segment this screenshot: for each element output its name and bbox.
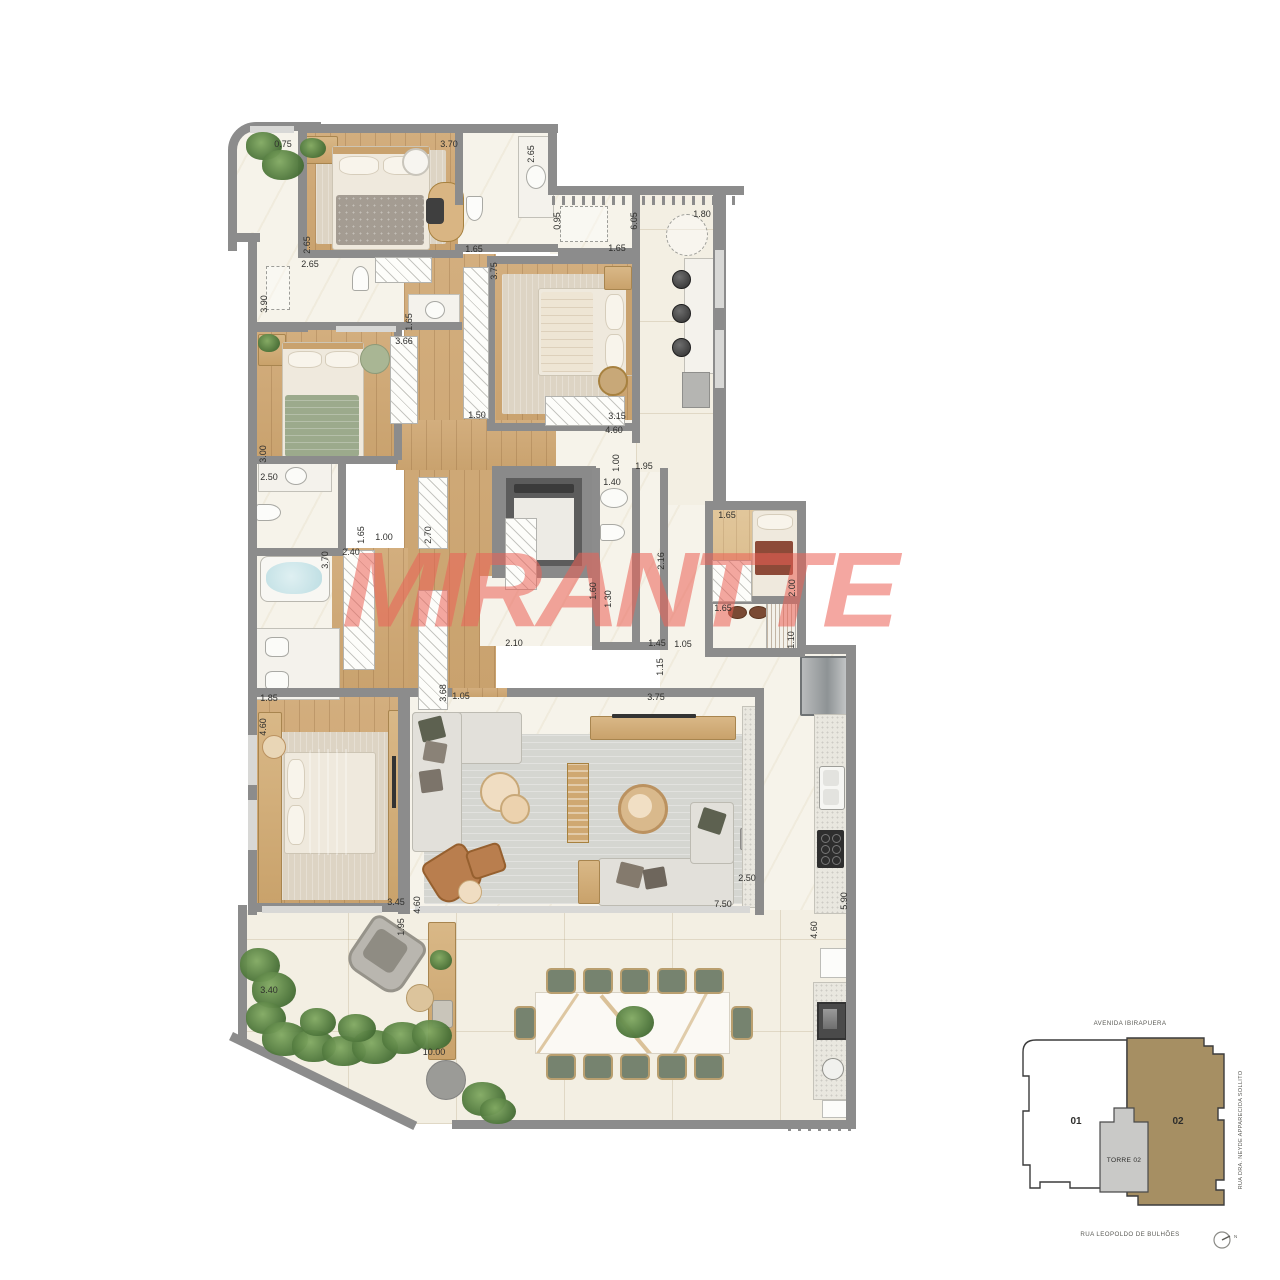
unit02-label: 02 bbox=[1172, 1116, 1184, 1127]
wall bbox=[548, 186, 744, 195]
bedroom1-blanket bbox=[336, 195, 424, 245]
dimension-label: 1.65 bbox=[714, 603, 732, 613]
fridge bbox=[800, 656, 850, 716]
bedroom3-bed bbox=[282, 342, 364, 462]
terrace-round-table bbox=[426, 1060, 466, 1100]
bbq-bench-top bbox=[820, 948, 848, 978]
balcony-ac-dashed bbox=[266, 266, 290, 310]
dimension-label: 1.65 bbox=[404, 313, 414, 331]
bedroom2-nightstand bbox=[604, 266, 632, 290]
dimension-label: 2.65 bbox=[301, 259, 319, 269]
master-bed bbox=[284, 752, 376, 854]
bbq-bench-bottom bbox=[822, 1100, 848, 1118]
dimension-label: 3.90 bbox=[259, 295, 269, 313]
dimension-label: 2.65 bbox=[526, 145, 536, 163]
dimension-label: 3.00 bbox=[258, 445, 268, 463]
dimension-label: 3.70 bbox=[440, 139, 458, 149]
wall bbox=[548, 124, 557, 195]
watermark: MIRANTTE bbox=[342, 528, 893, 651]
dining-chair bbox=[657, 968, 687, 994]
dimension-label: 1.45 bbox=[648, 638, 666, 648]
north-compass-icon: N bbox=[1214, 1232, 1237, 1248]
dimension-label: 1.05 bbox=[674, 639, 692, 649]
dimension-label: 1.30 bbox=[603, 590, 613, 608]
window bbox=[248, 735, 257, 785]
dimension-label: 1.95 bbox=[635, 461, 653, 471]
dimension-label: 2.65 bbox=[302, 236, 312, 254]
keyplan-svg: AVENIDA IBIRAPUERA RUA LEOPOLDO DE BULHÕ… bbox=[1008, 1012, 1248, 1262]
cooktop bbox=[817, 830, 844, 868]
master-blanket bbox=[309, 749, 353, 855]
tower-label: TORRE 02 bbox=[1107, 1157, 1142, 1164]
dimension-label: 0.75 bbox=[274, 139, 292, 149]
plant bbox=[300, 1008, 336, 1036]
dining-chair bbox=[620, 968, 650, 994]
console-shelf bbox=[567, 763, 589, 843]
sofa-pillow bbox=[422, 740, 447, 764]
kitchen-sink bbox=[819, 766, 845, 810]
plant bbox=[412, 1020, 452, 1050]
dimension-label: 4.60 bbox=[412, 896, 422, 914]
dimension-label: 3.68 bbox=[438, 684, 448, 702]
dimension-label: 3.70 bbox=[320, 551, 330, 569]
dimension-label: 3.75 bbox=[647, 692, 665, 702]
dimension-label: 2.40 bbox=[342, 547, 360, 557]
plant bbox=[480, 1098, 516, 1124]
bedroom1-mirror bbox=[402, 148, 430, 176]
bbq-sink bbox=[822, 1058, 844, 1080]
plant bbox=[616, 1006, 654, 1038]
plant bbox=[258, 334, 280, 352]
window bbox=[248, 800, 257, 850]
hall-ac-dashed bbox=[560, 206, 608, 242]
dimension-label: 2.00 bbox=[787, 579, 797, 597]
kitchen-counter bbox=[814, 714, 848, 914]
wall bbox=[846, 645, 856, 920]
unit01-label: 01 bbox=[1070, 1116, 1082, 1127]
elevator-door-bar bbox=[514, 484, 574, 493]
tv-sideboard bbox=[590, 716, 736, 740]
dimension-label: 1.00 bbox=[375, 532, 393, 542]
wall bbox=[705, 501, 805, 510]
plant bbox=[262, 150, 304, 180]
closet-wardrobe bbox=[463, 267, 489, 419]
bedroom2-blanket bbox=[541, 292, 593, 372]
dimension-label: 1.95 bbox=[396, 918, 406, 936]
awning-serration bbox=[552, 196, 742, 205]
dimension-label: 1.10 bbox=[786, 631, 796, 649]
dimension-label: 10.00 bbox=[423, 1047, 446, 1057]
dimension-label: 0.95 bbox=[552, 212, 562, 230]
dimension-label: 1.40 bbox=[603, 477, 621, 487]
compass-label: N bbox=[1234, 1234, 1237, 1239]
dimension-label: 2.10 bbox=[505, 638, 523, 648]
window bbox=[715, 330, 724, 388]
dining-chair bbox=[583, 968, 613, 994]
dimension-label: 3.15 bbox=[608, 411, 626, 421]
bbq-counter bbox=[813, 982, 848, 1100]
bar-stool bbox=[672, 304, 691, 323]
street-right-label: RUA DRA. NEYDE APPARECIDA SOLLITO bbox=[1238, 1070, 1244, 1189]
dimension-label: 1.65 bbox=[465, 244, 483, 254]
wall bbox=[846, 915, 856, 1129]
dimension-label: 4.60 bbox=[809, 921, 819, 939]
dimension-label: 3.40 bbox=[260, 985, 278, 995]
dimension-label: 1.00 bbox=[611, 454, 621, 472]
wall bbox=[632, 195, 640, 443]
dimension-label: 1.80 bbox=[693, 209, 711, 219]
wall bbox=[256, 456, 398, 464]
dining-chair bbox=[657, 1054, 687, 1080]
dining-chair bbox=[694, 1054, 724, 1080]
bbq-grill bbox=[817, 1002, 847, 1040]
side-table-round bbox=[458, 880, 482, 904]
dimension-label: 2.16 bbox=[656, 552, 666, 570]
dimension-label: 1.50 bbox=[468, 410, 486, 420]
dining-chair bbox=[546, 1054, 576, 1080]
sofa-side-table bbox=[578, 860, 600, 904]
dimension-label: 1.65 bbox=[608, 243, 626, 253]
wall bbox=[755, 692, 764, 915]
entry-skylight-dashed bbox=[666, 214, 708, 256]
dimension-label: 5.90 bbox=[839, 892, 849, 910]
dimension-label: 3.66 bbox=[395, 336, 413, 346]
dimension-label: 6.05 bbox=[629, 212, 639, 230]
terrace-side-table bbox=[406, 984, 434, 1012]
window-sliding-door bbox=[262, 906, 382, 913]
dimension-label: 1.15 bbox=[655, 658, 665, 676]
wall bbox=[398, 692, 410, 914]
awning-serration bbox=[788, 1122, 854, 1131]
dining-chair bbox=[546, 968, 576, 994]
dining-chair bbox=[514, 1006, 536, 1040]
dining-chair bbox=[620, 1054, 650, 1080]
dimension-label: 2.50 bbox=[260, 472, 278, 482]
floor-plan-page: MIRANTTE 0.753.701.802.651.651.653.661.5… bbox=[0, 0, 1280, 1280]
dimension-label: 3.45 bbox=[387, 897, 405, 907]
dimension-label: 7.50 bbox=[714, 899, 732, 909]
wall bbox=[248, 548, 348, 556]
tv-screen bbox=[612, 714, 696, 718]
window bbox=[715, 250, 724, 308]
round-table-top bbox=[628, 794, 652, 818]
closet-wardrobe bbox=[375, 257, 432, 283]
dimension-label: 4.60 bbox=[258, 718, 268, 736]
dimension-label: 2.70 bbox=[423, 526, 433, 544]
bedroom3-rug-round bbox=[360, 344, 390, 374]
window bbox=[336, 326, 396, 332]
desk-chair bbox=[426, 198, 444, 224]
plant bbox=[338, 1014, 376, 1042]
dimension-label: 4.60 bbox=[605, 425, 623, 435]
window-sliding-door bbox=[415, 906, 750, 913]
closet-wardrobe bbox=[390, 336, 418, 424]
plant bbox=[300, 138, 326, 158]
plant bbox=[430, 950, 452, 970]
dimension-label: 1.05 bbox=[452, 691, 470, 701]
master-tv bbox=[392, 756, 396, 808]
keyplan: AVENIDA IBIRAPUERA RUA LEOPOLDO DE BULHÕ… bbox=[1008, 1012, 1248, 1262]
wall bbox=[558, 248, 640, 256]
street-top-label: AVENIDA IBIRAPUERA bbox=[1094, 1020, 1167, 1027]
wall bbox=[487, 256, 640, 264]
dimension-label: 1.65 bbox=[718, 510, 736, 520]
toilet bbox=[466, 196, 483, 221]
wall bbox=[230, 233, 260, 242]
lavabo-sink bbox=[600, 488, 628, 508]
wall bbox=[300, 124, 558, 133]
street-bottom-label: RUA LEOPOLDO DE BULHÕES bbox=[1080, 1231, 1179, 1238]
toilet bbox=[256, 504, 281, 521]
dining-chair bbox=[731, 1006, 753, 1040]
bar-stool bbox=[672, 338, 691, 357]
sofa-pillow bbox=[419, 769, 444, 794]
dimension-label: 2.50 bbox=[738, 873, 756, 883]
master-lamp-table bbox=[262, 735, 286, 759]
bedroom2-pouf bbox=[598, 366, 628, 396]
coffee-table-small bbox=[500, 794, 530, 824]
dimension-label: 3.75 bbox=[489, 262, 499, 280]
dining-chair bbox=[694, 968, 724, 994]
entry-counter-cabinet bbox=[682, 372, 710, 408]
dining-chair bbox=[583, 1054, 613, 1080]
sofa-pillow bbox=[642, 866, 667, 890]
toilet bbox=[352, 266, 369, 291]
dimension-label: 1.65 bbox=[356, 526, 366, 544]
bar-stool bbox=[672, 270, 691, 289]
bedroom2-bed bbox=[538, 288, 634, 376]
dimension-label: 1.60 bbox=[588, 582, 598, 600]
dimension-label: 1.85 bbox=[260, 693, 278, 703]
bedroom3-blanket bbox=[285, 395, 359, 457]
